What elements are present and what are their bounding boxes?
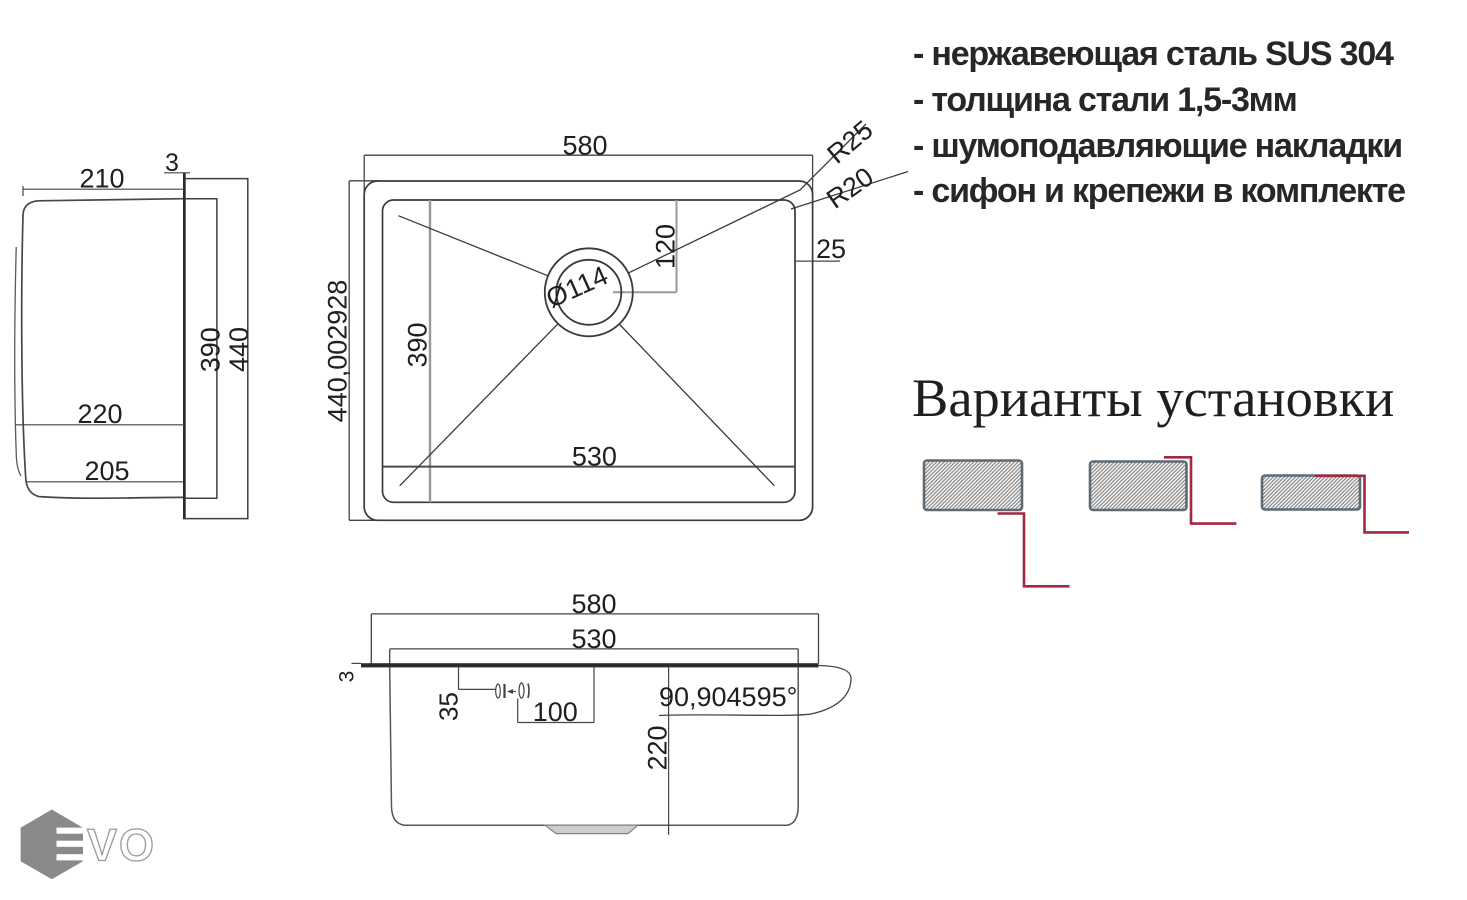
svg-text:- нержавеющая сталь SUS 304: - нержавеющая сталь SUS 304	[913, 35, 1394, 73]
svg-text:35: 35	[434, 692, 464, 721]
svg-text:90,904595°: 90,904595°	[659, 682, 797, 712]
svg-text:3: 3	[165, 149, 179, 177]
svg-text:R25: R25	[821, 115, 878, 170]
svg-text:- сифон и крепежи в комплекте: - сифон и крепежи в комплекте	[913, 172, 1405, 210]
svg-text:390: 390	[403, 322, 433, 367]
svg-text:210: 210	[79, 164, 124, 194]
svg-text:100: 100	[533, 697, 578, 727]
svg-text:Варианты установки: Варианты установки	[912, 367, 1394, 428]
svg-text:VO: VO	[87, 820, 156, 871]
svg-text:220: 220	[643, 725, 673, 770]
svg-text:- шумоподавляющие накладки: - шумоподавляющие накладки	[913, 127, 1402, 165]
svg-text:205: 205	[84, 456, 129, 486]
svg-text:440: 440	[224, 327, 254, 372]
svg-text:25: 25	[816, 234, 846, 264]
svg-text:220: 220	[77, 399, 122, 429]
svg-text:R20: R20	[821, 162, 879, 215]
svg-text:- толщина стали 1,5-3мм: - толщина стали 1,5-3мм	[913, 81, 1297, 119]
svg-text:120: 120	[651, 224, 681, 269]
svg-text:580: 580	[562, 131, 607, 161]
svg-text:530: 530	[572, 442, 617, 472]
svg-text:530: 530	[571, 624, 616, 654]
svg-text:580: 580	[571, 589, 616, 619]
svg-text:3: 3	[336, 671, 359, 683]
svg-text:440,002928: 440,002928	[323, 280, 353, 423]
svg-text:390: 390	[196, 327, 226, 372]
